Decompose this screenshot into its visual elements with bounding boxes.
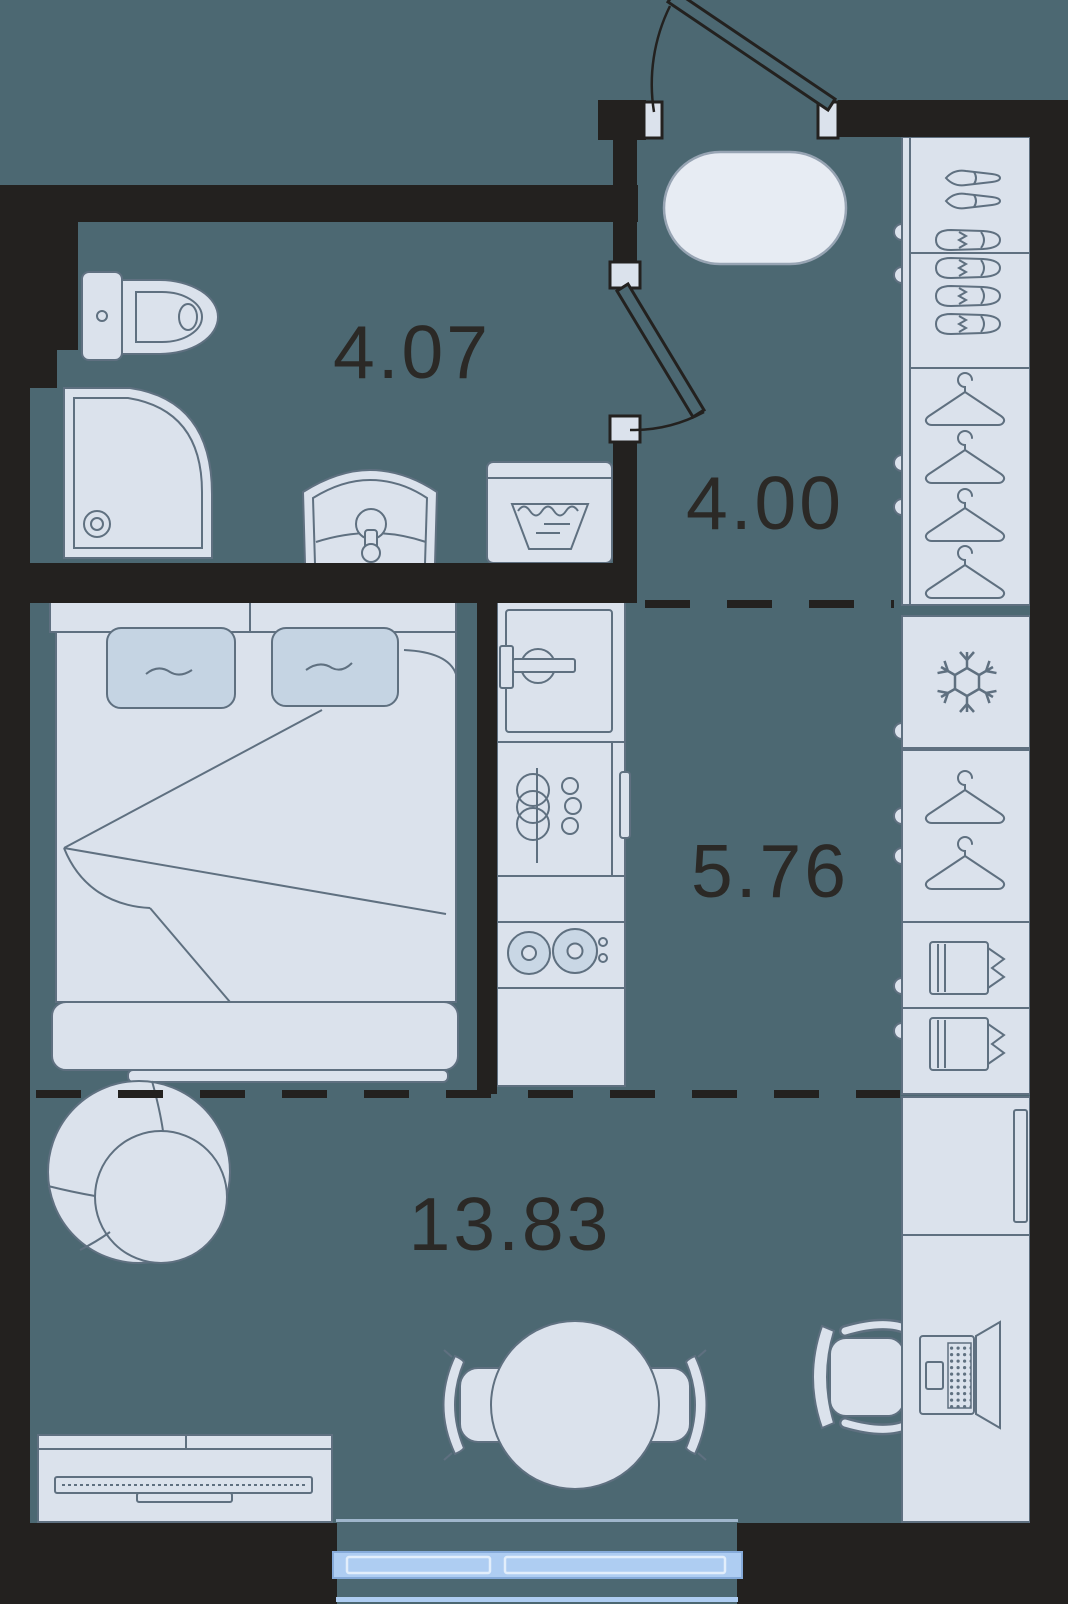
floor-plan: 4.07 4.00 5.76 13.83	[0, 0, 1068, 1604]
toilet-icon	[82, 272, 218, 360]
oven-handle-icon	[620, 772, 630, 838]
shower-icon	[64, 388, 212, 558]
fridge	[894, 616, 1030, 748]
closet-knob	[894, 224, 902, 240]
tv-stand-icon	[38, 1435, 332, 1522]
window-icon	[333, 1519, 742, 1602]
shoe-closet	[894, 137, 1030, 605]
entry-rug-icon	[664, 152, 846, 264]
floor-plan-drawing	[0, 0, 1068, 1604]
room-area-label-living-room: 13.83	[409, 1181, 612, 1267]
pillow	[272, 628, 398, 706]
sink-icon	[303, 470, 437, 564]
kitchen-unit	[497, 600, 630, 1086]
room-area-label-bathroom: 4.07	[333, 309, 491, 395]
laptop-icon	[920, 1322, 1000, 1428]
pillow	[107, 628, 235, 708]
office-chair-icon	[813, 1325, 904, 1430]
room-area-label-hallway: 4.00	[686, 460, 844, 546]
room-area-label-kitchen: 5.76	[691, 828, 849, 914]
double-bed-icon	[50, 602, 458, 1082]
washing-machine-icon	[487, 462, 612, 563]
wardrobe	[894, 750, 1030, 1094]
desk	[902, 1235, 1030, 1522]
dining-table-icon	[491, 1321, 659, 1489]
hall-cabinet	[902, 1097, 1030, 1235]
dining-set	[444, 1321, 707, 1489]
entrance-door-icon	[644, 0, 838, 138]
armchair-icon	[48, 1081, 230, 1263]
bathroom-door-icon	[610, 262, 704, 442]
